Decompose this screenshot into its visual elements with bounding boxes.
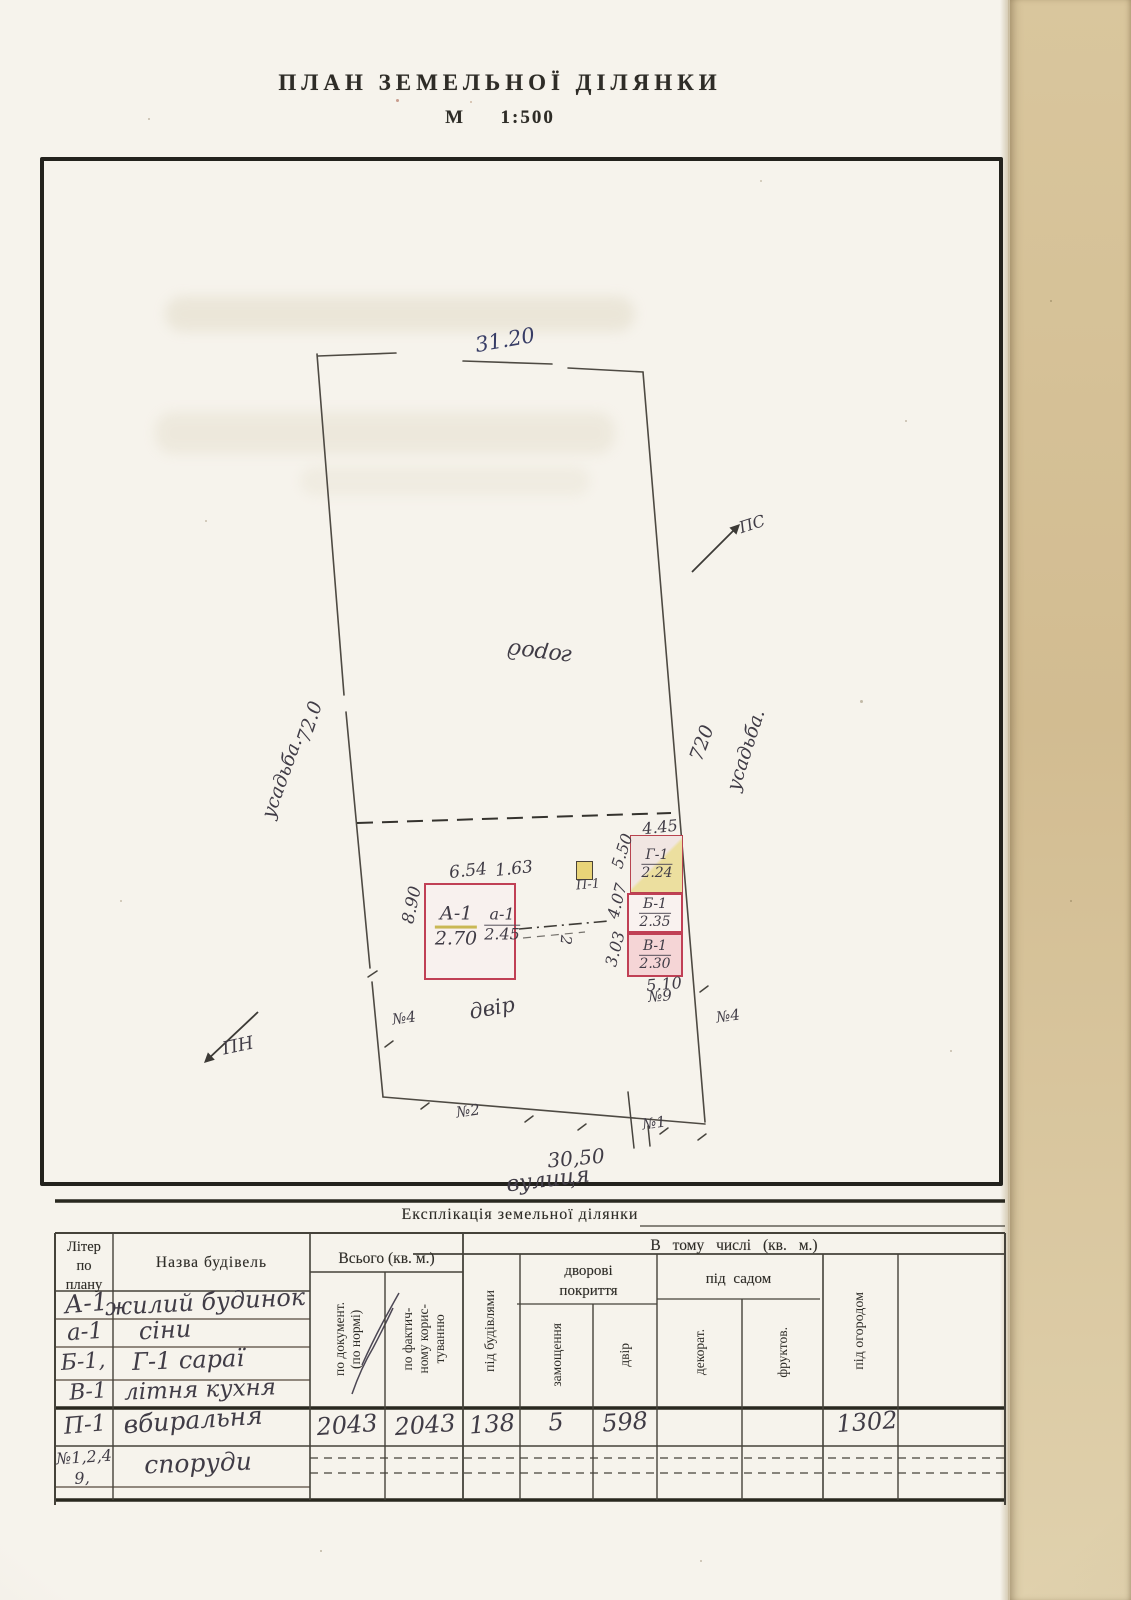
col-header-total: Всього (кв. м.) — [310, 1249, 463, 1269]
south-arrow — [692, 524, 740, 572]
row-liter: В-1 — [68, 1378, 107, 1406]
value-total-fact: 2043 — [394, 1409, 457, 1441]
building-b1-area: 2.35 — [639, 914, 671, 930]
boundary-marker-n4-right: №4 — [715, 1005, 741, 1026]
row-name: сіни — [138, 1315, 192, 1346]
group-header-garden: під садом — [657, 1270, 820, 1290]
value-paving: 5 — [547, 1408, 564, 1437]
col-header-decorative: декорат. — [657, 1302, 742, 1402]
boundary-marker-n4-left: №4 — [391, 1007, 417, 1028]
house-a1-label: А-1 2.70 — [435, 905, 477, 950]
house-width-annex: 1.63 — [494, 857, 534, 881]
building-b1-id: Б-1 — [639, 897, 671, 914]
building-g1-area: 2.24 — [641, 865, 672, 881]
building-v1-area: 2.30 — [639, 956, 671, 972]
fence-dash-line-2 — [523, 932, 585, 938]
value-total-doc: 2043 — [316, 1409, 379, 1441]
value-yard: 598 — [601, 1406, 649, 1437]
row-liter: А-1 — [63, 1287, 109, 1320]
fence-dash-dot-line — [519, 921, 609, 929]
col-header-included: В тому числі (кв. м.) — [463, 1236, 1005, 1256]
building-g1-label: Г-1 2.24 — [641, 848, 672, 880]
house-annex-id: а-1 — [484, 907, 520, 926]
row-liter: а-1 — [66, 1318, 104, 1346]
table-caption: Експлікація земельної ділянки — [380, 1206, 660, 1224]
building-v1-width: 5.10 — [645, 973, 682, 995]
house-a1-id: А-1 — [435, 905, 477, 929]
col-header-total-doc: по документ. (по нормі) — [310, 1275, 385, 1403]
house-annex-area: 2.45 — [484, 926, 520, 944]
garden-divider-dashed-line — [357, 813, 671, 823]
col-header-yard: двір — [593, 1306, 657, 1403]
row-liter: Б-1, — [60, 1348, 106, 1376]
house-a1-area: 2.70 — [435, 929, 477, 950]
boundary-marker-n1: №1 — [641, 1112, 667, 1133]
house-annex-label: а-1 2.45 — [484, 907, 520, 944]
col-header-buildings: під будівлями — [463, 1258, 520, 1403]
boundary-marker-n2: №2 — [455, 1100, 481, 1121]
building-b1-label: Б-1 2.35 — [639, 897, 671, 929]
col-header-vegetable: під огородом — [823, 1260, 898, 1402]
building-v1-id: В-1 — [639, 939, 671, 956]
row-liter: №1,2,4 — [55, 1446, 112, 1469]
fence-mark: 2 — [557, 934, 576, 945]
col-header-total-fact: по фактич- ному корис- туванню — [385, 1275, 463, 1403]
row-name: споруди — [144, 1447, 253, 1480]
row-liter: П-1 — [63, 1410, 108, 1440]
house-width-main: 6.54 — [448, 859, 488, 883]
value-vegetable: 1302 — [836, 1406, 899, 1438]
row-liter-2: 9, — [74, 1468, 91, 1488]
building-p1-label: П-1 — [575, 876, 600, 893]
scanned-land-plot-document: ПЛАН ЗЕМЕЛЬНОЇ ДІЛЯНКИ М 1:500 — [0, 0, 1131, 1600]
building-g1-width: 4.45 — [641, 816, 678, 839]
building-v1-label: В-1 2.30 — [639, 939, 671, 971]
row-name: Г-1 сараї — [132, 1344, 245, 1376]
col-header-fruit: фруктов. — [742, 1302, 823, 1402]
value-buildings: 138 — [468, 1408, 516, 1439]
col-header-name: Назва будівель — [113, 1253, 310, 1273]
building-g1-id: Г-1 — [641, 848, 672, 865]
col-header-paving: замощення — [520, 1306, 593, 1403]
group-header-yard-cover: дворові покриття — [520, 1262, 657, 1301]
